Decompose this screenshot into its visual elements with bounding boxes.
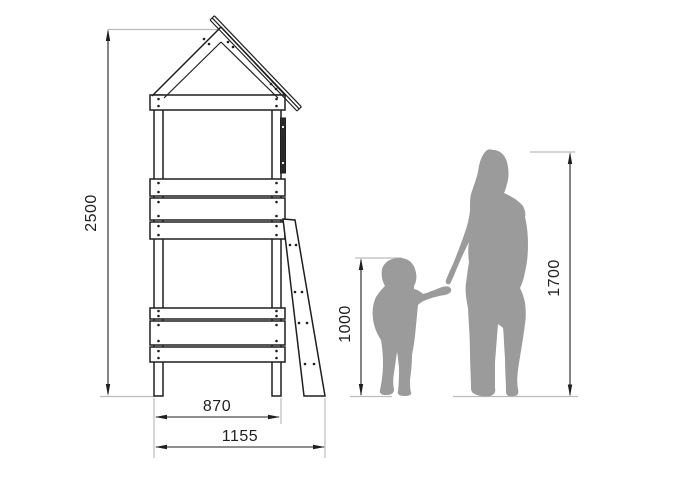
dimension-child-height: 1000	[337, 258, 363, 396]
frame-board	[150, 308, 285, 319]
dimension-label-adult-height: 1700	[546, 259, 563, 297]
frame-board	[150, 347, 285, 362]
roof-screws	[203, 38, 278, 91]
child-silhouette	[373, 258, 452, 396]
frame-board	[150, 198, 285, 220]
technical-drawing: 2500 870 1155 1000 1700	[0, 0, 675, 480]
dimension-label-child-height: 1000	[337, 305, 354, 343]
frame-board	[150, 321, 285, 345]
play-tower	[150, 16, 325, 396]
frame-board	[150, 179, 285, 196]
dimension-adult-height: 1700	[546, 152, 572, 397]
ladder	[283, 219, 325, 396]
dimension-label-overall-width: 1155	[222, 428, 258, 445]
frame-board	[150, 95, 285, 110]
diagram-canvas: 2500 870 1155 1000 1700	[0, 0, 675, 480]
adult-silhouette	[446, 149, 528, 396]
dimension-overall-width: 1155	[155, 428, 325, 449]
scale-figures	[373, 149, 528, 396]
frame-board	[150, 222, 285, 239]
frame-boards	[150, 95, 285, 362]
dimension-label-leg-span: 870	[203, 398, 231, 415]
dimension-label-total-height: 2500	[83, 194, 100, 232]
dimension-leg-span: 870	[155, 398, 280, 419]
dimension-total-height: 2500	[83, 29, 110, 396]
